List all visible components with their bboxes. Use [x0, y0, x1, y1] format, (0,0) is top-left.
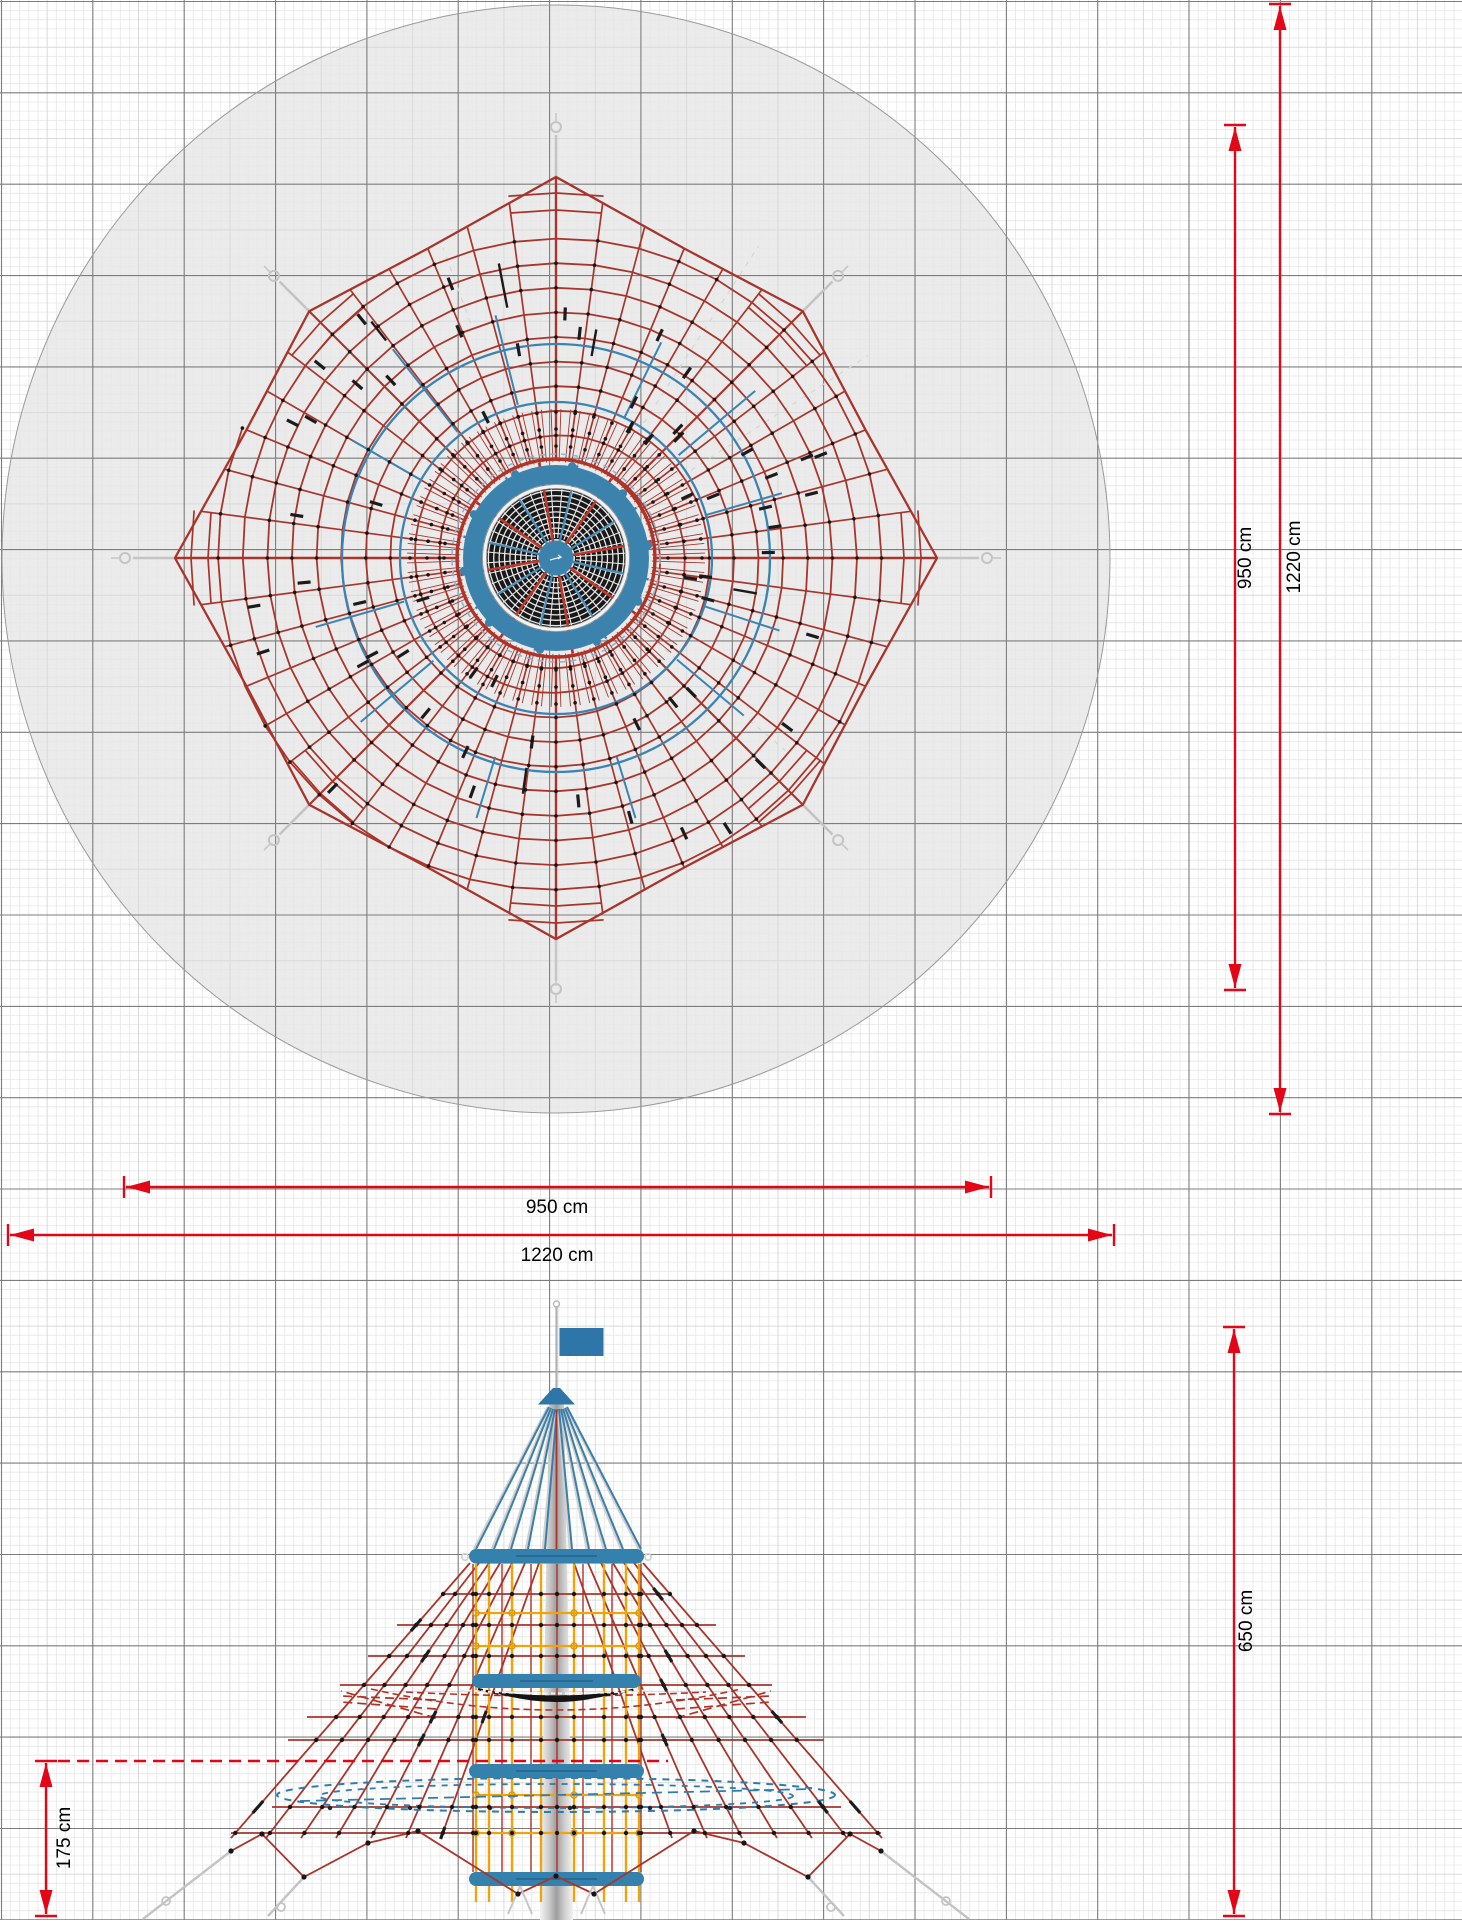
svg-text:950 cm: 950 cm — [1235, 527, 1256, 589]
svg-text:950 cm: 950 cm — [526, 1197, 588, 1218]
svg-text:175 cm: 175 cm — [54, 1807, 75, 1869]
svg-text:650 cm: 650 cm — [1236, 1590, 1257, 1652]
svg-text:1220 cm: 1220 cm — [521, 1245, 594, 1266]
svg-text:1220 cm: 1220 cm — [1284, 521, 1305, 594]
